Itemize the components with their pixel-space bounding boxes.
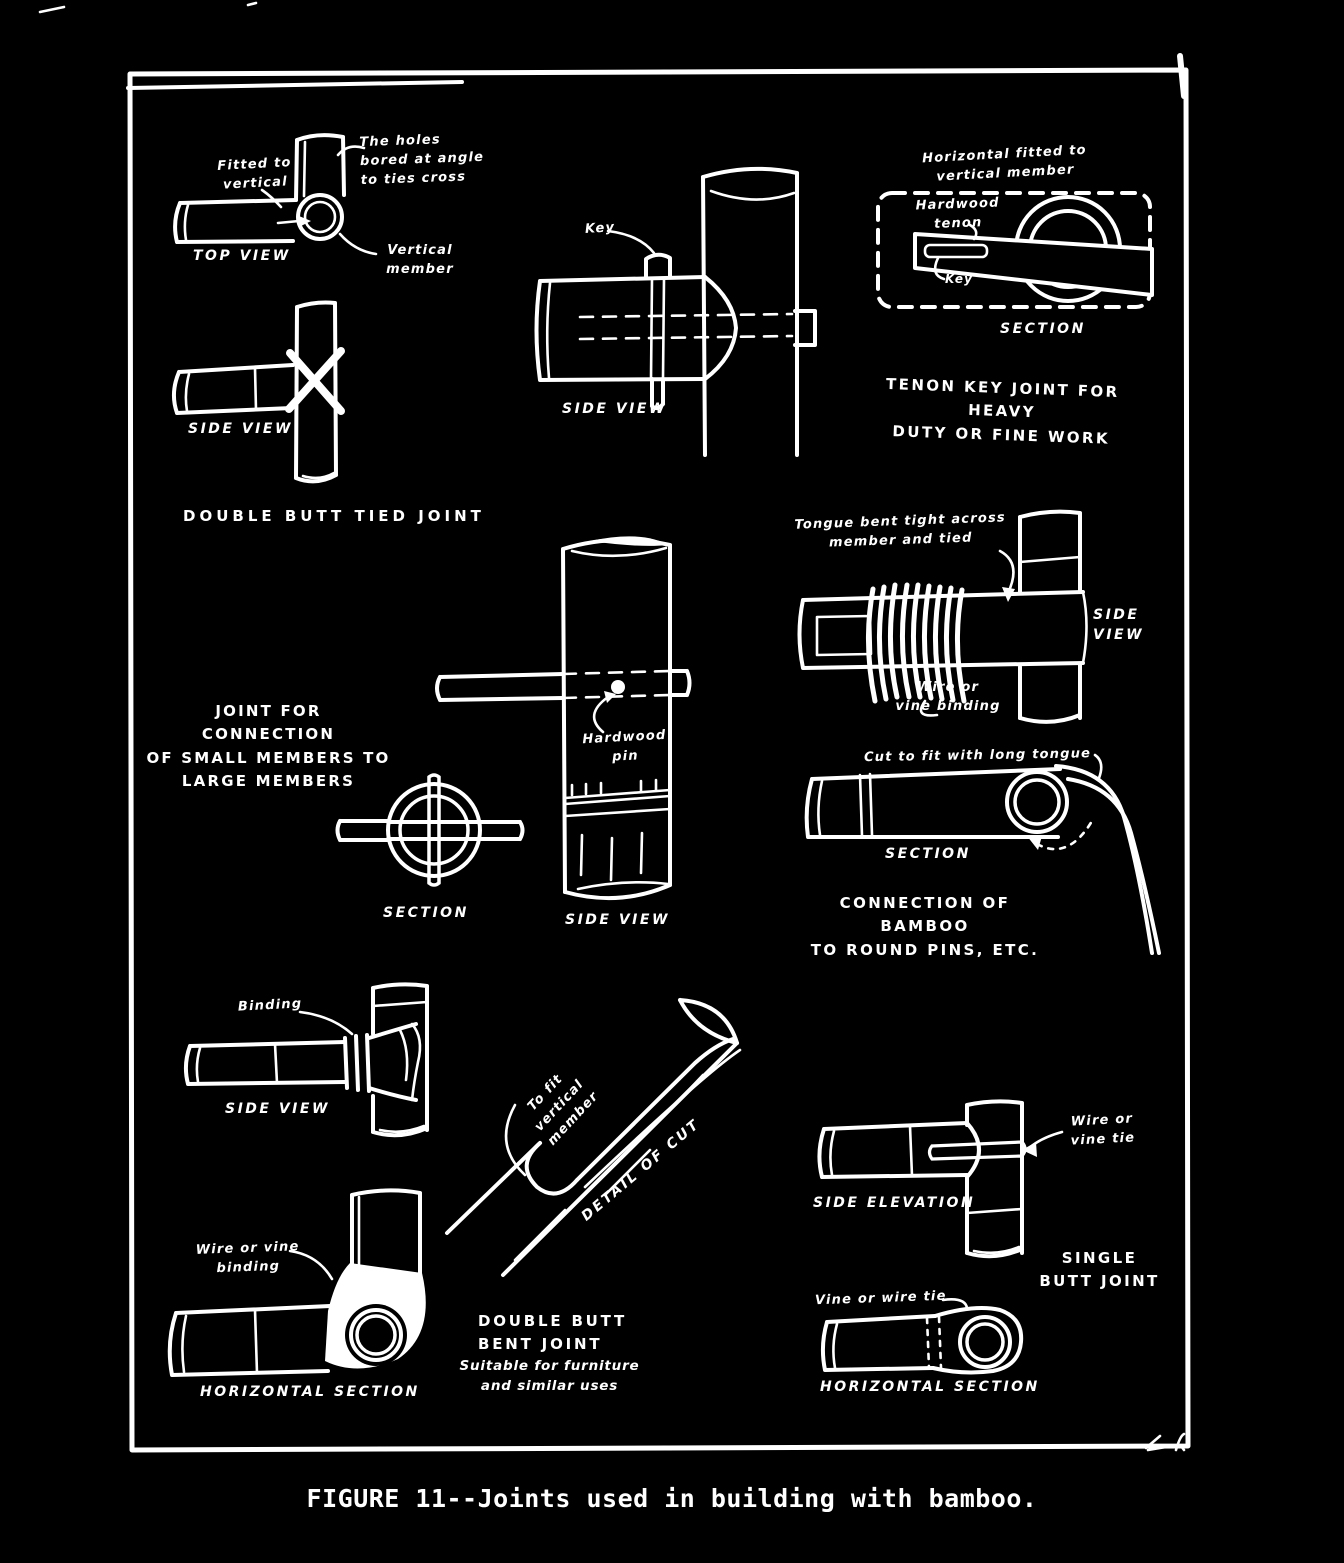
key-label: Key: [584, 219, 616, 240]
binding-label: Binding: [238, 995, 303, 1017]
fitted-to-vertical-label: Fitted to vertical: [199, 153, 311, 196]
side-elevation-label: SIDE ELEVATION: [813, 1194, 975, 1214]
tenon-key-joint-title: TENON KEY JOINT FOR HEAVY DUTY OR FINE W…: [851, 372, 1153, 452]
tenon-key-label: Key: [945, 271, 973, 288]
corner-wire-binding-label: Wire or vine binding: [177, 1238, 318, 1281]
corner-binding-drawing: [160, 1185, 450, 1400]
tongue-side-view-label: SIDE VIEW: [1093, 606, 1144, 645]
corner-horizontal-section-label: HORIZONTAL SECTION: [200, 1383, 420, 1403]
single-butt-title: SINGLE BUTT JOINT: [1032, 1247, 1167, 1294]
suitable-furniture-label: Suitable for furniture and similar uses: [452, 1356, 647, 1397]
tie-horizontal-section-label: HORIZONTAL SECTION: [820, 1378, 1040, 1398]
binding-side-view-label: SIDE VIEW: [225, 1100, 330, 1120]
mid-section-label: SECTION: [383, 904, 469, 924]
tied-side-view-drawing: [165, 295, 355, 490]
detail-of-cut-drawing: [445, 975, 765, 1280]
mid-side-view-label: SIDE VIEW: [565, 911, 670, 931]
wire-vine-binding-label: Wire or vine binding: [878, 679, 1018, 717]
binding-side-view-drawing: [160, 980, 450, 1145]
connection-bamboo-title: CONNECTION OF BAMBOO TO ROUND PINS, ETC.: [796, 892, 1054, 962]
figure-page: Fitted to vertical The holes bored at an…: [0, 0, 1344, 1563]
pins-section-label: SECTION: [885, 845, 971, 865]
tied-side-view-label: SIDE VIEW: [188, 420, 293, 440]
figure-caption: FIGURE 11--Joints used in building with …: [307, 1484, 1038, 1513]
vertical-member-label: Vertical member: [360, 242, 480, 280]
wire-vine-tie-label: Wire or vine tie: [1054, 1110, 1151, 1153]
double-butt-tied-title: DOUBLE BUTT TIED JOINT: [183, 505, 485, 528]
tongue-bent-label: Tongue bent tight across member and tied: [792, 509, 1008, 554]
tenon-section-label: SECTION: [1000, 320, 1086, 340]
key-side-view-label: SIDE VIEW: [562, 400, 667, 420]
hardwood-tenon-label: Hardwood tenon: [897, 194, 1018, 236]
holes-bored-label: The holes bored at angle to ties cross: [359, 128, 541, 191]
double-butt-bent-title: DOUBLE BUTT BENT JOINT: [478, 1310, 627, 1357]
hardwood-pin-label: Hardwood pin: [574, 726, 676, 769]
top-view-label: TOP VIEW: [193, 247, 291, 267]
